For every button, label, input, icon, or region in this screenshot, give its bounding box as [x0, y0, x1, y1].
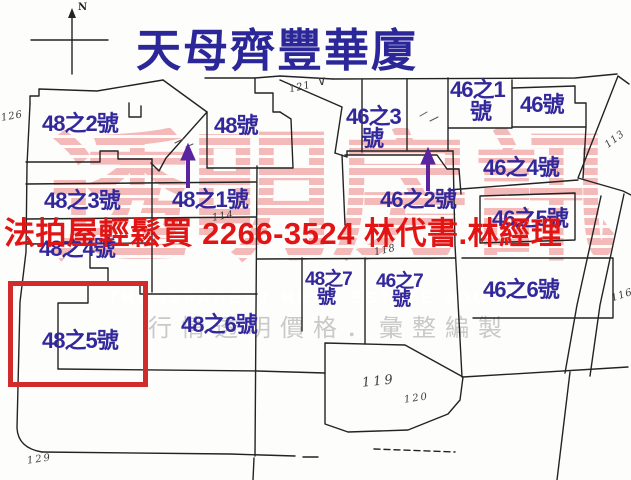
parcel-label-line2: 號 [392, 291, 423, 309]
parcel-label-46-6: 46之6號 [483, 279, 559, 301]
parcel-label-46-2: 46之2號 [380, 189, 456, 211]
parcel-label-48-7: 48之7 號 [305, 271, 352, 307]
parcel-label-48: 48號 [214, 115, 257, 137]
north-label: N [78, 2, 87, 13]
parcel-label-46-1: 46之1 號 [450, 79, 505, 123]
parcel-label-48-1: 48之1號 [172, 189, 248, 211]
check-mark: ∨ [316, 74, 328, 90]
parcel-label-line2: 號 [317, 289, 352, 307]
parcel-label-48-3: 48之3號 [44, 190, 120, 212]
parcel-label-46-7: 46之7 號 [376, 273, 423, 309]
parcel-label-48-6: 48之6號 [181, 314, 257, 336]
pointer-arrow-icon [181, 144, 195, 188]
parcel-label-48-2: 48之2號 [42, 113, 118, 135]
ad-banner: 法拍屋輕鬆買 2266-3524 林代書.林經理 [4, 217, 562, 251]
parcel-label-line2: 號 [470, 101, 505, 123]
parcel-label-46-4: 46之4號 [483, 157, 559, 179]
highlight-box [8, 281, 148, 387]
cadastral-map: 透明房訊 TRANSPARENT REAL ESTATE JOURNAL 行情透… [0, 0, 631, 480]
parcel-label-line2: 號 [362, 128, 401, 150]
page-title: 天母齊豐華廈 [136, 14, 418, 79]
parcel-label-46-3: 46之3 號 [346, 106, 401, 150]
parcel-label-46: 46號 [520, 94, 563, 116]
north-arrow-icon [31, 8, 108, 74]
